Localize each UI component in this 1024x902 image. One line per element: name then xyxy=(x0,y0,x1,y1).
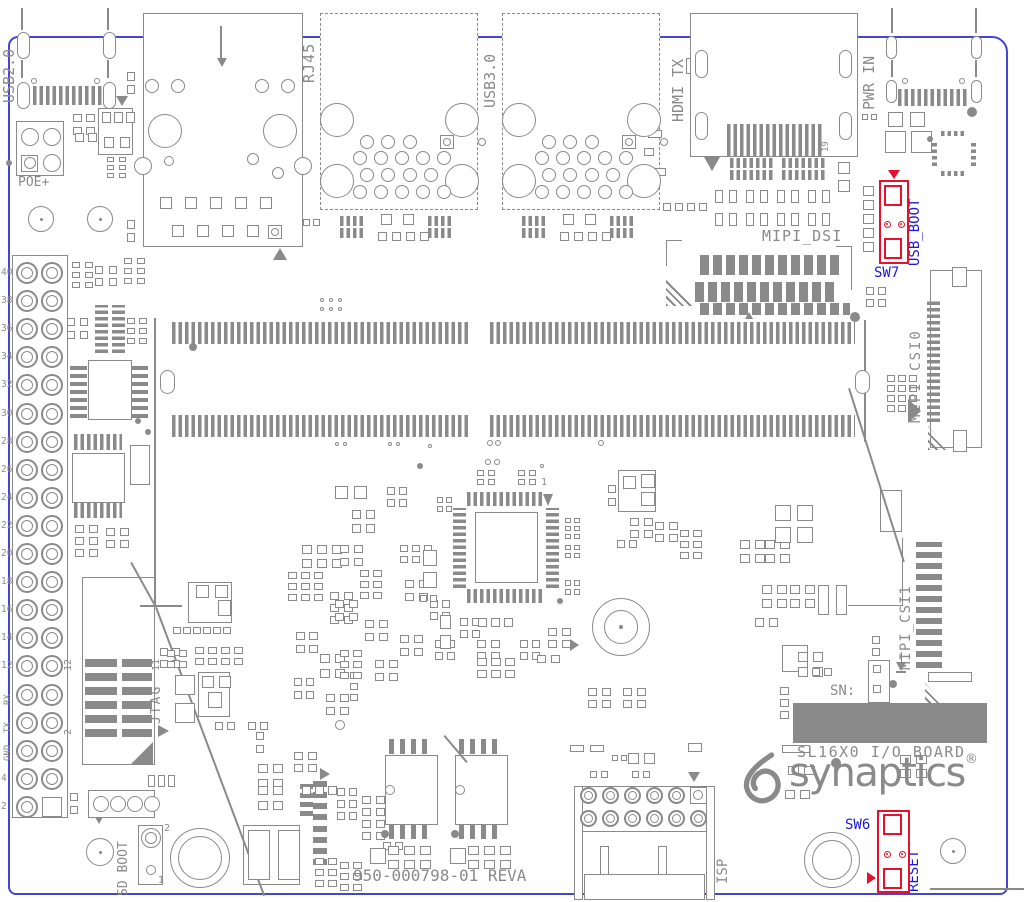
smd-pad xyxy=(360,581,369,588)
smd-pad xyxy=(120,540,129,548)
smd-pad xyxy=(755,540,765,549)
smd-pad xyxy=(80,318,88,326)
component-outline xyxy=(72,453,125,503)
hole-pad xyxy=(540,464,544,468)
smd-pad xyxy=(126,112,135,123)
smd-pad xyxy=(715,213,723,226)
smd-pad xyxy=(630,518,639,526)
smd-pad xyxy=(315,880,324,887)
smd-pad xyxy=(824,668,832,676)
smd-pad xyxy=(898,405,906,412)
smd-pad xyxy=(183,627,191,634)
smd-pad xyxy=(213,627,221,634)
smd-pad xyxy=(447,652,455,660)
pin-strip xyxy=(782,170,826,180)
smd-pad xyxy=(629,540,637,548)
smd-pad xyxy=(80,331,88,339)
via xyxy=(145,429,151,435)
bracket-mark xyxy=(836,246,852,290)
smd-pad xyxy=(328,869,337,876)
gpio-pin-hole xyxy=(46,408,58,420)
smd-pad xyxy=(127,85,135,94)
smd-pad xyxy=(119,165,126,170)
pin-strip xyxy=(782,158,826,168)
gpio-pin-hole xyxy=(21,801,33,813)
smd-pad xyxy=(400,556,408,563)
pin-strip xyxy=(695,282,835,302)
smd-pad xyxy=(588,688,597,696)
gpio-pin-label: 28 xyxy=(1,436,12,447)
smd-pad xyxy=(460,618,468,626)
smd-pad xyxy=(669,534,678,542)
hole-pad xyxy=(320,298,324,302)
smd-pad xyxy=(366,524,375,533)
smd-pad xyxy=(574,534,580,539)
smd-pad xyxy=(484,846,495,855)
pin-strip xyxy=(131,362,148,418)
hole-pad xyxy=(416,185,430,199)
smd-pad xyxy=(148,775,155,787)
smd-pad xyxy=(565,545,571,550)
smd-pad xyxy=(863,186,874,196)
smd-pad xyxy=(762,599,772,608)
smd-pad xyxy=(590,745,604,752)
pcb-silkscreen-drawing: USB2.0 RJ45 USB3.0 HDMI TX PWR IN POE+ M… xyxy=(0,0,1024,902)
smd-pad xyxy=(663,203,671,211)
registered-trademark: ® xyxy=(965,752,978,767)
smd-pad xyxy=(423,550,437,566)
smd-pad xyxy=(414,648,423,656)
smd-pad xyxy=(898,385,906,392)
hole-pad xyxy=(381,135,395,149)
isp-pin-hole xyxy=(694,814,703,823)
pin-strip xyxy=(172,415,468,437)
silkscreen-line xyxy=(108,8,110,30)
smd-pad xyxy=(420,846,431,855)
smd-pad xyxy=(379,620,388,628)
smd-pad xyxy=(185,197,197,209)
component-outline xyxy=(953,430,967,452)
smd-pad xyxy=(208,647,217,654)
smd-pad xyxy=(158,775,165,787)
mipi-csi0-label: MIPI CSI0 xyxy=(909,329,923,423)
smd-pad xyxy=(258,764,268,773)
pin-strip xyxy=(85,657,117,737)
gpio-pin-label: TX xyxy=(3,722,13,733)
smd-pad xyxy=(488,470,495,476)
smd-pad xyxy=(218,600,231,616)
oval-pad xyxy=(695,112,708,140)
pin-strip xyxy=(700,255,840,275)
pin-strip xyxy=(389,739,433,754)
gpio-pin-hole xyxy=(21,492,33,504)
smd-pad xyxy=(160,197,172,209)
sw7-label: SW7 xyxy=(874,266,899,280)
pin-strip xyxy=(916,542,942,668)
hole-pad xyxy=(395,151,409,165)
hole-pad xyxy=(146,865,156,875)
smd-pad xyxy=(340,862,349,869)
led-pad xyxy=(873,665,881,673)
smd-pad xyxy=(762,585,772,594)
smd-pad xyxy=(565,553,571,558)
smd-pad xyxy=(477,670,487,678)
smd-pad xyxy=(75,525,84,533)
smd-pad xyxy=(260,722,268,730)
hole-pad xyxy=(598,440,604,446)
sd-boot-pin2-label: 2 xyxy=(164,824,170,834)
triangle-marker-icon xyxy=(95,817,103,824)
qfp-pin1-label: 1 xyxy=(541,478,547,488)
smd-pad xyxy=(765,554,775,563)
gpio-pin-label: 26 xyxy=(1,464,12,475)
smd-pad xyxy=(585,214,596,225)
smd-pad xyxy=(234,658,243,665)
smd-pad xyxy=(477,479,484,485)
gpio-pin-label: GND xyxy=(3,744,13,760)
sw7-usb-boot-switch xyxy=(879,180,909,264)
smd-pad xyxy=(375,673,384,681)
smd-pad xyxy=(693,552,702,559)
via xyxy=(557,598,563,604)
sd-boot-label: SD BOOT xyxy=(117,841,130,896)
smd-pad xyxy=(127,72,135,81)
smd-pad xyxy=(167,661,175,668)
smd-pad xyxy=(366,510,375,519)
hole-pad xyxy=(577,151,591,165)
smd-pad xyxy=(344,592,353,600)
smd-pad xyxy=(797,505,813,521)
pin-strip xyxy=(428,228,454,238)
smd-pad xyxy=(89,525,98,533)
hole-pad xyxy=(272,167,284,179)
smd-pad xyxy=(85,272,93,278)
smd-pad xyxy=(335,600,344,608)
hole-pad xyxy=(598,185,612,199)
smd-pad xyxy=(107,165,114,170)
smd-pad xyxy=(537,655,546,663)
smd-pad xyxy=(565,534,571,539)
hole-pad xyxy=(145,79,159,93)
smd-pad xyxy=(838,180,850,192)
smd-pad xyxy=(362,832,371,840)
hole-pad xyxy=(445,103,479,137)
silkscreen-line xyxy=(108,60,110,78)
smd-pad xyxy=(387,487,395,495)
hole-pad xyxy=(171,79,185,93)
smd-pad xyxy=(353,672,362,679)
smd-pad xyxy=(137,268,145,274)
via xyxy=(451,830,459,838)
smd-pad xyxy=(273,786,283,795)
silkscreen-line xyxy=(221,26,223,58)
sw6-pin1-marker-icon xyxy=(867,872,876,884)
smd-pad xyxy=(208,692,222,708)
hole-pad xyxy=(535,151,549,165)
gpio-pin-hole xyxy=(21,520,33,532)
gpio-pin-hole xyxy=(21,464,33,476)
smd-pad xyxy=(72,262,80,268)
oval-pad xyxy=(886,80,897,103)
silkscreen-line xyxy=(976,8,978,33)
smd-pad xyxy=(805,585,815,594)
smd-pad xyxy=(337,800,345,808)
smd-pad xyxy=(910,112,925,127)
hole-pad xyxy=(329,298,333,302)
hole-pad xyxy=(416,151,430,165)
smd-pad xyxy=(107,173,114,178)
via xyxy=(6,160,12,166)
hole-pad xyxy=(360,168,374,182)
hole-pad xyxy=(619,185,633,199)
smd-pad xyxy=(565,518,571,523)
smd-pad xyxy=(139,328,147,334)
smd-pad xyxy=(315,786,324,795)
gpio-pin-hole xyxy=(21,548,33,560)
gpio-pin-label: 32 xyxy=(1,379,12,390)
smd-pad xyxy=(602,232,611,241)
smd-pad xyxy=(388,846,399,855)
smd-pad xyxy=(765,540,775,549)
component-outline xyxy=(600,846,609,876)
smd-pad xyxy=(109,278,117,286)
smd-pad xyxy=(623,688,632,696)
smd-pad xyxy=(349,812,357,820)
hole-pad xyxy=(353,185,367,199)
component-outline xyxy=(88,360,132,420)
gpio-pin-hole xyxy=(21,689,33,701)
smd-pad xyxy=(400,635,409,643)
silkscreen-line xyxy=(892,8,894,33)
smd-pad xyxy=(777,599,787,608)
gpio-pin-label: 30 xyxy=(1,408,12,419)
smd-pad xyxy=(75,133,84,142)
hole-pad xyxy=(144,796,160,812)
smd-pad xyxy=(680,530,689,537)
component-outline xyxy=(928,672,972,682)
smd-pad xyxy=(196,585,209,598)
gpio-pin-hole xyxy=(21,436,33,448)
gpio-pin-label: 18 xyxy=(1,576,12,587)
hole-pad xyxy=(902,78,908,84)
smd-pad xyxy=(863,228,874,238)
smd-pad xyxy=(221,658,230,665)
smd-pad xyxy=(818,585,829,615)
smd-pad xyxy=(335,486,348,499)
smd-pad xyxy=(740,540,750,549)
gpio-pin-label: 36 xyxy=(1,323,12,334)
hole-pad xyxy=(145,832,157,844)
jtag-label: JTAG xyxy=(150,685,163,724)
mipi-csi1-label: MIPI_CSI1 xyxy=(899,585,913,670)
hole-pad xyxy=(24,157,36,169)
smd-pad xyxy=(340,545,349,553)
silkscreen-line xyxy=(976,60,978,77)
smd-pad xyxy=(822,190,830,203)
gpio-pin-label: 34 xyxy=(1,351,12,362)
isp-pin-hole xyxy=(672,791,681,800)
smd-pad xyxy=(85,262,93,268)
smd-pad xyxy=(309,645,318,653)
smd-pad xyxy=(791,213,799,226)
triangle-marker-icon xyxy=(745,312,753,319)
triangle-marker-icon xyxy=(704,157,720,171)
smd-pad xyxy=(628,753,639,764)
smd-pad xyxy=(805,599,815,608)
hole-pad xyxy=(424,168,438,182)
silkscreen-line xyxy=(22,8,24,30)
hole-pad xyxy=(395,185,409,199)
via xyxy=(381,830,389,838)
smd-pad xyxy=(362,808,371,816)
smd-pad xyxy=(248,722,256,730)
smd-pad xyxy=(617,540,625,548)
smd-pad xyxy=(86,114,95,122)
smd-pad xyxy=(446,497,452,503)
isp-pin-hole xyxy=(650,814,659,823)
smd-pad xyxy=(780,711,789,719)
jtag-corner-marker xyxy=(131,742,153,764)
pin-strip xyxy=(459,739,503,754)
smd-pad xyxy=(414,635,423,643)
smd-pad xyxy=(887,385,895,392)
isp-pin-hole xyxy=(584,791,593,800)
pin-strip xyxy=(490,322,855,344)
smd-pad xyxy=(294,764,303,772)
pin-strip xyxy=(522,216,548,226)
hole-pad xyxy=(281,79,295,93)
pin-strip xyxy=(70,362,87,418)
serial-number-label: SN: xyxy=(830,684,855,698)
hdmi-pin19-label: 19 xyxy=(822,141,831,152)
component-outline xyxy=(952,267,967,287)
smd-pad xyxy=(746,190,754,203)
smd-pad xyxy=(349,600,358,608)
smd-pad xyxy=(73,114,82,122)
triangle-marker-icon xyxy=(273,248,287,260)
smd-pad xyxy=(798,652,808,662)
via xyxy=(619,625,623,629)
smd-pad xyxy=(378,232,387,241)
jtag-pin2-label: 2 xyxy=(64,729,74,735)
jtag-pin11-label: 11 xyxy=(152,659,162,671)
serial-number-bar xyxy=(793,703,987,743)
hdmi-tx-label: HDMI TX xyxy=(671,59,686,122)
smd-pad xyxy=(373,570,382,577)
hole-pad xyxy=(812,840,852,880)
usb-boot-label: USB_BOOT xyxy=(908,199,922,266)
hole-pad xyxy=(660,138,668,146)
smd-pad xyxy=(314,594,323,601)
smd-pad xyxy=(120,137,130,148)
smd-pad xyxy=(124,278,132,284)
hole-pad xyxy=(556,185,570,199)
smd-pad xyxy=(179,650,187,657)
hole-pad xyxy=(563,168,577,182)
smd-pad xyxy=(340,661,349,668)
smd-pad xyxy=(644,753,655,764)
smd-pad xyxy=(403,214,414,225)
smd-pad xyxy=(127,318,135,324)
smd-pad xyxy=(729,213,737,226)
smd-pad xyxy=(353,884,362,891)
smd-pad xyxy=(520,640,528,648)
smd-pad xyxy=(288,583,297,590)
smd-pad xyxy=(822,213,830,226)
hole-pad xyxy=(110,796,126,812)
smd-pad xyxy=(872,648,880,656)
smd-pad xyxy=(294,752,303,760)
smd-pad xyxy=(127,338,135,344)
sw6-reset-switch xyxy=(877,810,910,893)
smd-pad xyxy=(72,282,80,288)
smd-pad xyxy=(797,527,813,543)
smd-pad xyxy=(124,268,132,274)
gpio-pin-hole xyxy=(46,267,58,279)
gpio-pin-hole xyxy=(21,717,33,729)
via xyxy=(927,136,933,142)
pin-strip xyxy=(610,216,636,226)
smd-pad xyxy=(760,213,768,226)
hole-pad xyxy=(93,796,109,812)
smd-pad xyxy=(643,771,650,778)
smd-pad xyxy=(303,219,310,226)
via xyxy=(135,418,141,424)
hole-pad xyxy=(495,440,501,446)
smd-pad xyxy=(478,618,487,627)
hole-pad xyxy=(585,135,599,149)
smd-pad xyxy=(491,640,500,648)
smd-pad xyxy=(548,628,557,636)
smd-pad xyxy=(632,771,639,778)
smd-pad xyxy=(790,599,800,608)
smd-pad xyxy=(472,630,480,638)
smd-pad xyxy=(477,658,487,666)
smd-pad xyxy=(644,530,653,538)
smd-pad xyxy=(107,157,114,162)
smd-pad xyxy=(219,676,231,688)
gpio-pin-hole xyxy=(21,295,33,307)
smd-pad xyxy=(769,618,778,627)
smd-pad xyxy=(210,197,222,209)
hole-pad xyxy=(478,138,486,146)
hole-pad xyxy=(535,185,549,199)
smd-pad xyxy=(488,479,495,485)
isp-pin-hole xyxy=(628,791,637,800)
smd-pad xyxy=(195,647,204,654)
oval-pad xyxy=(695,50,708,78)
smd-pad xyxy=(637,700,646,708)
hole-pad xyxy=(556,151,570,165)
hole-pad xyxy=(178,836,222,880)
smd-pad xyxy=(808,213,816,226)
hole-pad xyxy=(437,185,451,199)
via xyxy=(967,107,977,117)
smd-pad xyxy=(109,266,117,274)
gpio-pin-hole xyxy=(21,773,33,785)
smd-pad xyxy=(294,691,302,699)
smd-pad xyxy=(67,331,75,339)
smd-pad xyxy=(602,700,611,708)
smd-pad xyxy=(440,615,451,629)
smd-pad xyxy=(75,549,84,557)
smd-pad xyxy=(172,225,184,237)
smd-pad xyxy=(88,133,97,142)
smd-pad xyxy=(680,541,689,548)
smd-pad xyxy=(365,620,374,628)
hole-pad xyxy=(577,185,591,199)
smd-pad xyxy=(790,585,800,594)
